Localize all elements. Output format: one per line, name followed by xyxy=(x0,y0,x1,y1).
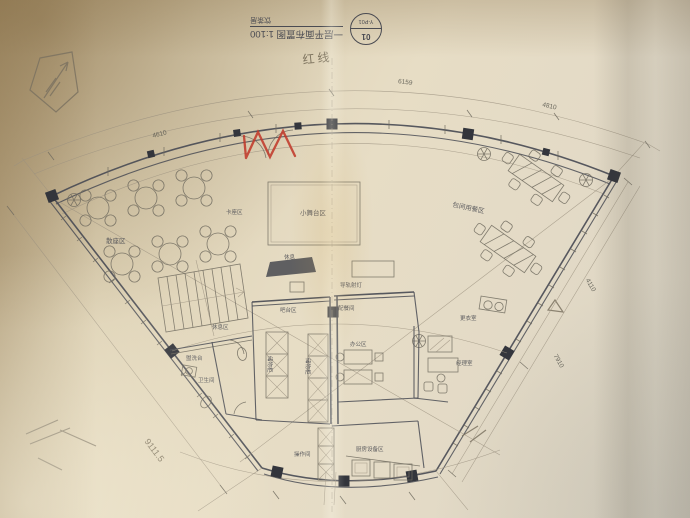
right-wall xyxy=(436,176,618,474)
label-changing: 更衣室 xyxy=(460,314,477,322)
label-booth: 卡座区 xyxy=(226,208,243,216)
drawing-title: 一层平面布置图 1:100 xyxy=(250,27,343,43)
label-restroom: 卫生间 xyxy=(198,376,215,384)
label-private-dining: 包间用餐区 xyxy=(452,200,486,216)
floor-plan-photo: 4610 6159 4810 4110 7910 9111.5 红线 散座区 卡… xyxy=(0,0,690,518)
dim-top-right: 4810 xyxy=(542,102,558,112)
title-text: 一层平面布置图 1:100 饮茶居 xyxy=(250,16,343,43)
label-prep: 操作间 xyxy=(294,450,311,458)
reception-desk xyxy=(266,257,394,292)
handwritten-note: 红线 xyxy=(302,49,333,67)
dining-tables xyxy=(80,170,236,282)
floor-plan-drawing: 4610 6159 4810 4110 7910 9111.5 红线 散座区 卡… xyxy=(0,0,690,518)
label-bar: 吧台区 xyxy=(280,306,297,314)
sheet-number-stamp: 01 Y-P01 xyxy=(350,13,382,45)
sheet-code: Y-P01 xyxy=(351,14,381,29)
north-arrow-icon xyxy=(30,52,78,112)
staircase xyxy=(158,260,248,336)
label-washstand: 盥洗台 xyxy=(186,354,203,362)
dim-right-lower: 7910 xyxy=(552,353,565,369)
outer-wall xyxy=(52,120,614,214)
label-rest: 休息 xyxy=(284,253,296,261)
label-lounge: 休息区 xyxy=(212,323,229,331)
label-kitchen: 厨房设备区 xyxy=(356,445,384,453)
label-cabinet-left: 储物柜 xyxy=(266,356,274,373)
red-marker-highlight xyxy=(244,131,295,158)
dim-top-center: 6159 xyxy=(398,78,414,87)
dim-right-upper: 4110 xyxy=(584,277,597,293)
label-track-light: 导轨射灯 xyxy=(340,281,363,289)
kitchen-equipment xyxy=(346,456,420,480)
side-dimension-lines xyxy=(7,178,640,504)
label-office-mid: 办公区 xyxy=(350,340,367,348)
title-block: 01 Y-P01 一层平面布置图 1:100 饮茶居 xyxy=(228,7,382,51)
mid-office-desks xyxy=(336,350,383,384)
label-cabinet-right: 储物柜 xyxy=(304,358,312,375)
project-name: 饮茶居 xyxy=(250,16,343,26)
label-stage: 小舞台区 xyxy=(300,208,327,217)
sheet-number: 01 xyxy=(351,29,381,45)
label-dining: 散座区 xyxy=(106,236,126,245)
handwritten-dimension: 9111.5 xyxy=(143,437,167,464)
label-manager: 经理室 xyxy=(456,359,473,367)
dim-top-left: 4610 xyxy=(152,129,168,139)
label-pantry: 配餐间 xyxy=(338,304,355,312)
